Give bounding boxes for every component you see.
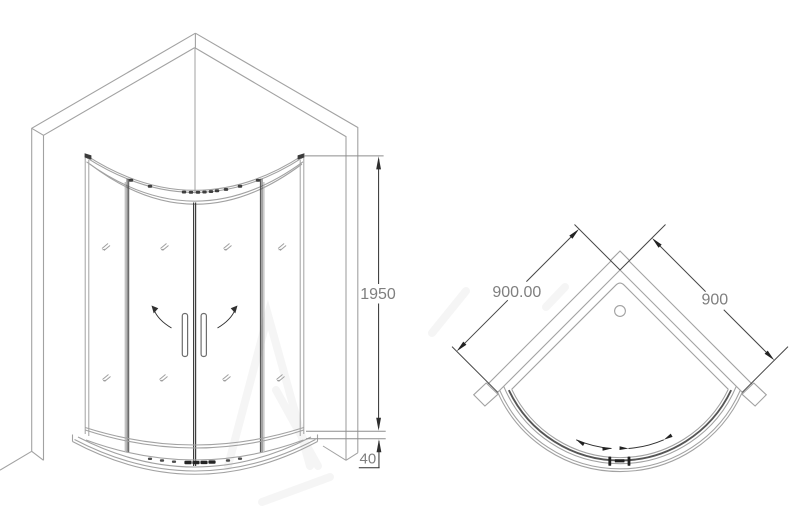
- svg-text:40: 40: [360, 451, 377, 468]
- svg-text:900: 900: [701, 292, 728, 309]
- svg-text:1950: 1950: [360, 286, 396, 303]
- svg-text:900.00: 900.00: [492, 284, 541, 301]
